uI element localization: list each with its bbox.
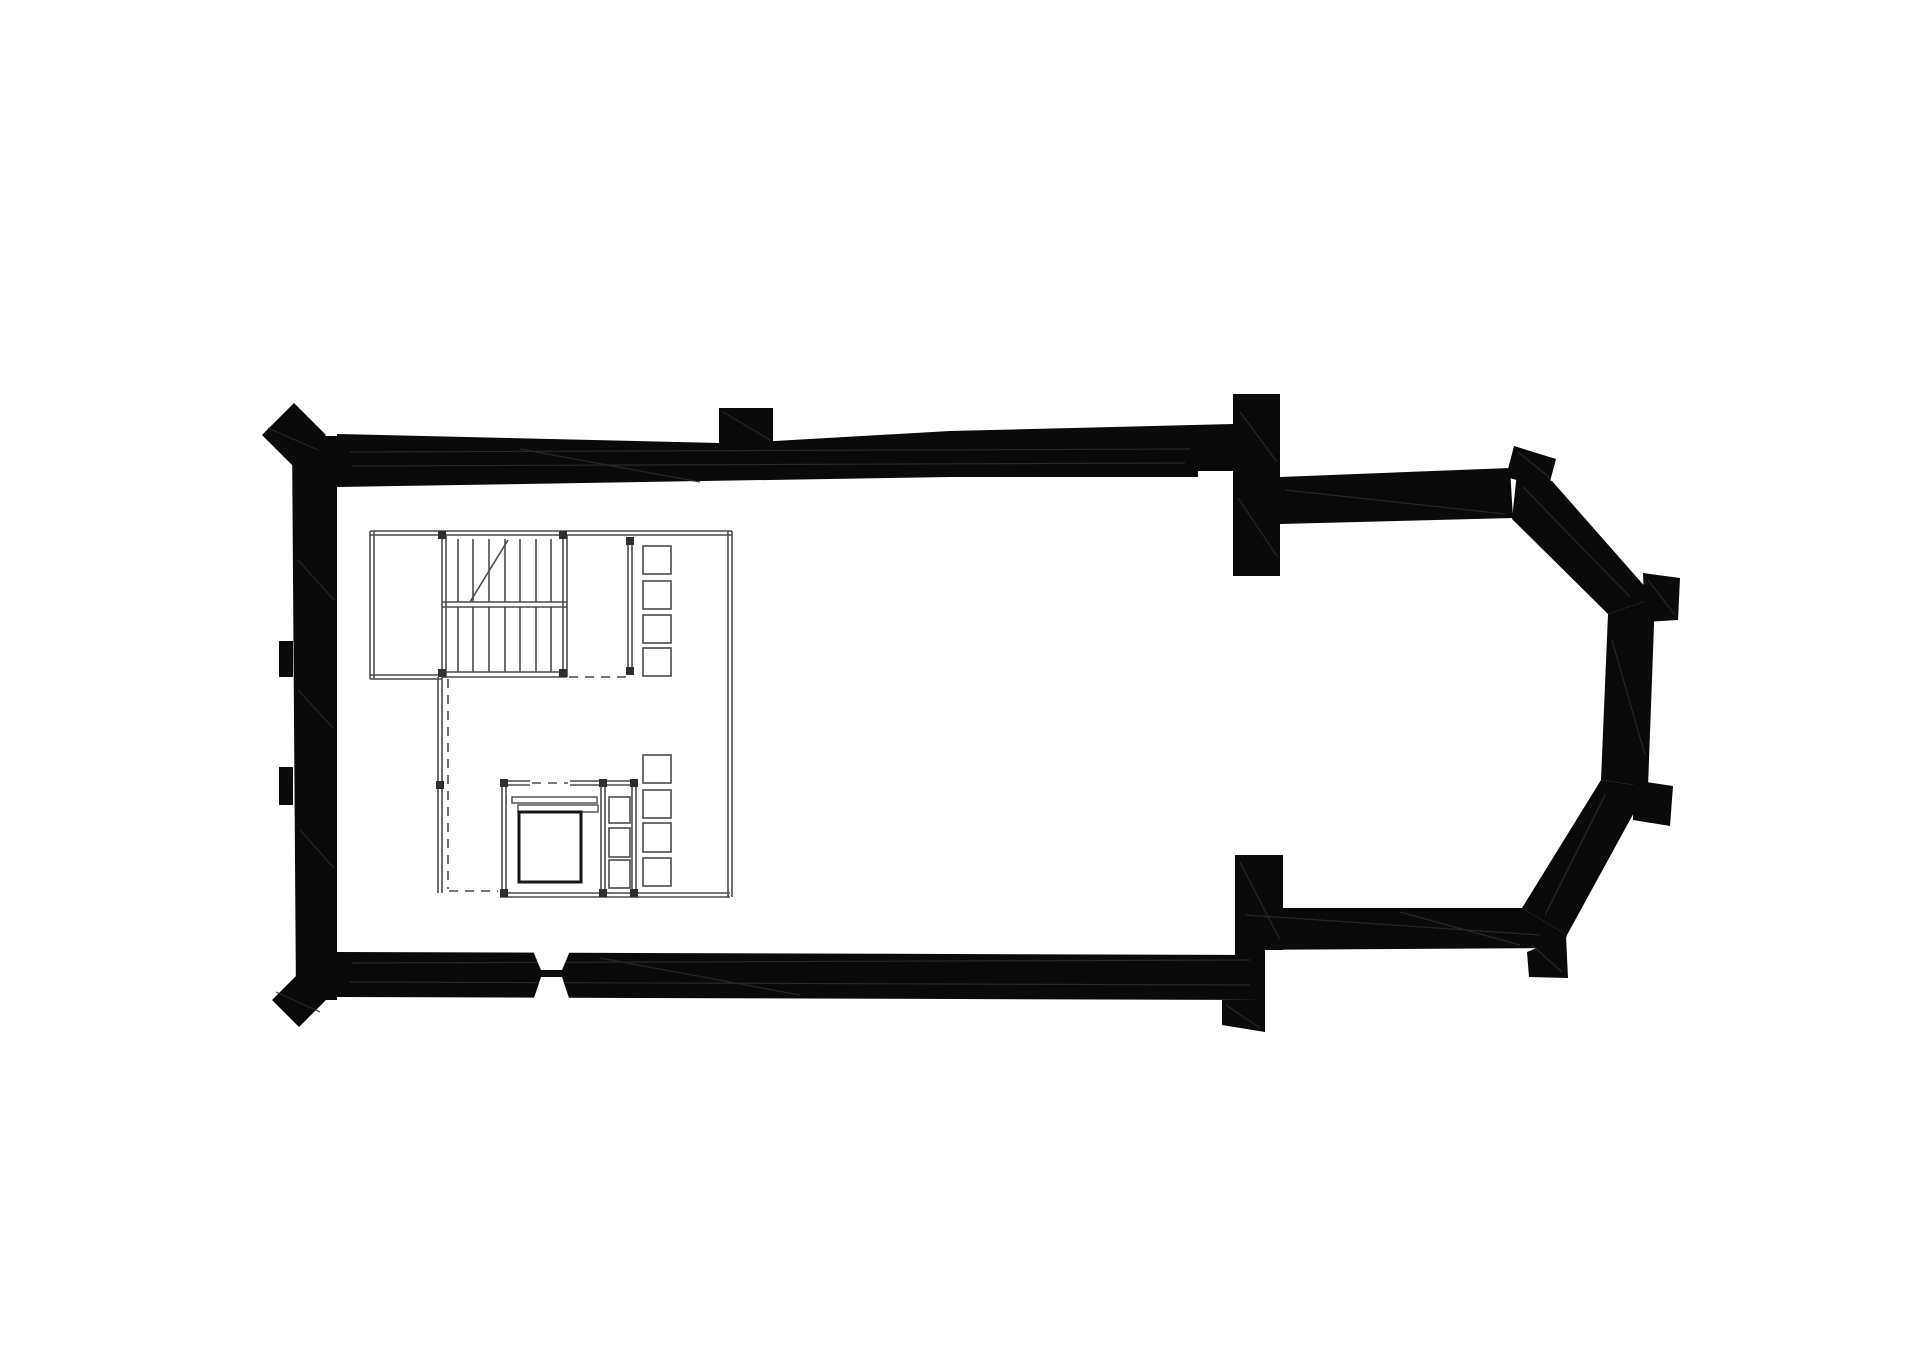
corner-post [626, 537, 634, 545]
gallery-seat-square [643, 823, 671, 852]
nave-south-wall [336, 952, 1265, 1000]
chancel-arch-north-respond [1233, 394, 1280, 576]
nave-west-wall [292, 436, 337, 1000]
enclosure-step-square [609, 797, 630, 823]
corner-post [630, 779, 638, 787]
corner-post [599, 889, 607, 897]
apse-northeast-wall [1512, 473, 1655, 614]
enclosure-step-square [609, 828, 630, 857]
corner-post [438, 669, 446, 677]
floor-plan-canvas [0, 0, 1920, 1358]
altar-square [519, 812, 581, 882]
gallery-seat-square [643, 546, 671, 574]
corner-post [559, 669, 567, 677]
west-wall-pilaster-lower [279, 767, 293, 805]
corner-post [500, 779, 508, 787]
gallery-seat-square [643, 755, 671, 783]
corner-post [599, 779, 607, 787]
gallery-seat-square [643, 615, 671, 643]
floor-plan-page [0, 0, 1920, 1358]
masonry-walls-layer [262, 394, 1680, 1032]
gallery-seat-square [643, 648, 671, 676]
bench-bar-upper [512, 797, 597, 803]
gallery-seat-square [643, 858, 671, 886]
corner-post [559, 531, 567, 539]
south-junction-fill [1235, 950, 1265, 955]
chancel-arch-south-respond [1235, 855, 1283, 950]
corner-post [630, 889, 638, 897]
corner-post [626, 667, 634, 675]
west-wall-pilaster-upper [279, 641, 293, 677]
corner-post [436, 781, 444, 789]
chancel-north-wall [1280, 468, 1513, 524]
corner-post [438, 531, 446, 539]
corner-post [500, 889, 508, 897]
gallery-seat-square [643, 790, 671, 818]
gallery-seat-square [643, 581, 671, 609]
apse-east-wall [1601, 598, 1655, 787]
north-wall-stub-buttress [719, 408, 773, 445]
apse-southeast-wall [1522, 780, 1648, 935]
interior-fittings-layer [370, 531, 732, 897]
enclosure-step-square [609, 860, 630, 888]
nave-north-wall [337, 424, 1233, 487]
